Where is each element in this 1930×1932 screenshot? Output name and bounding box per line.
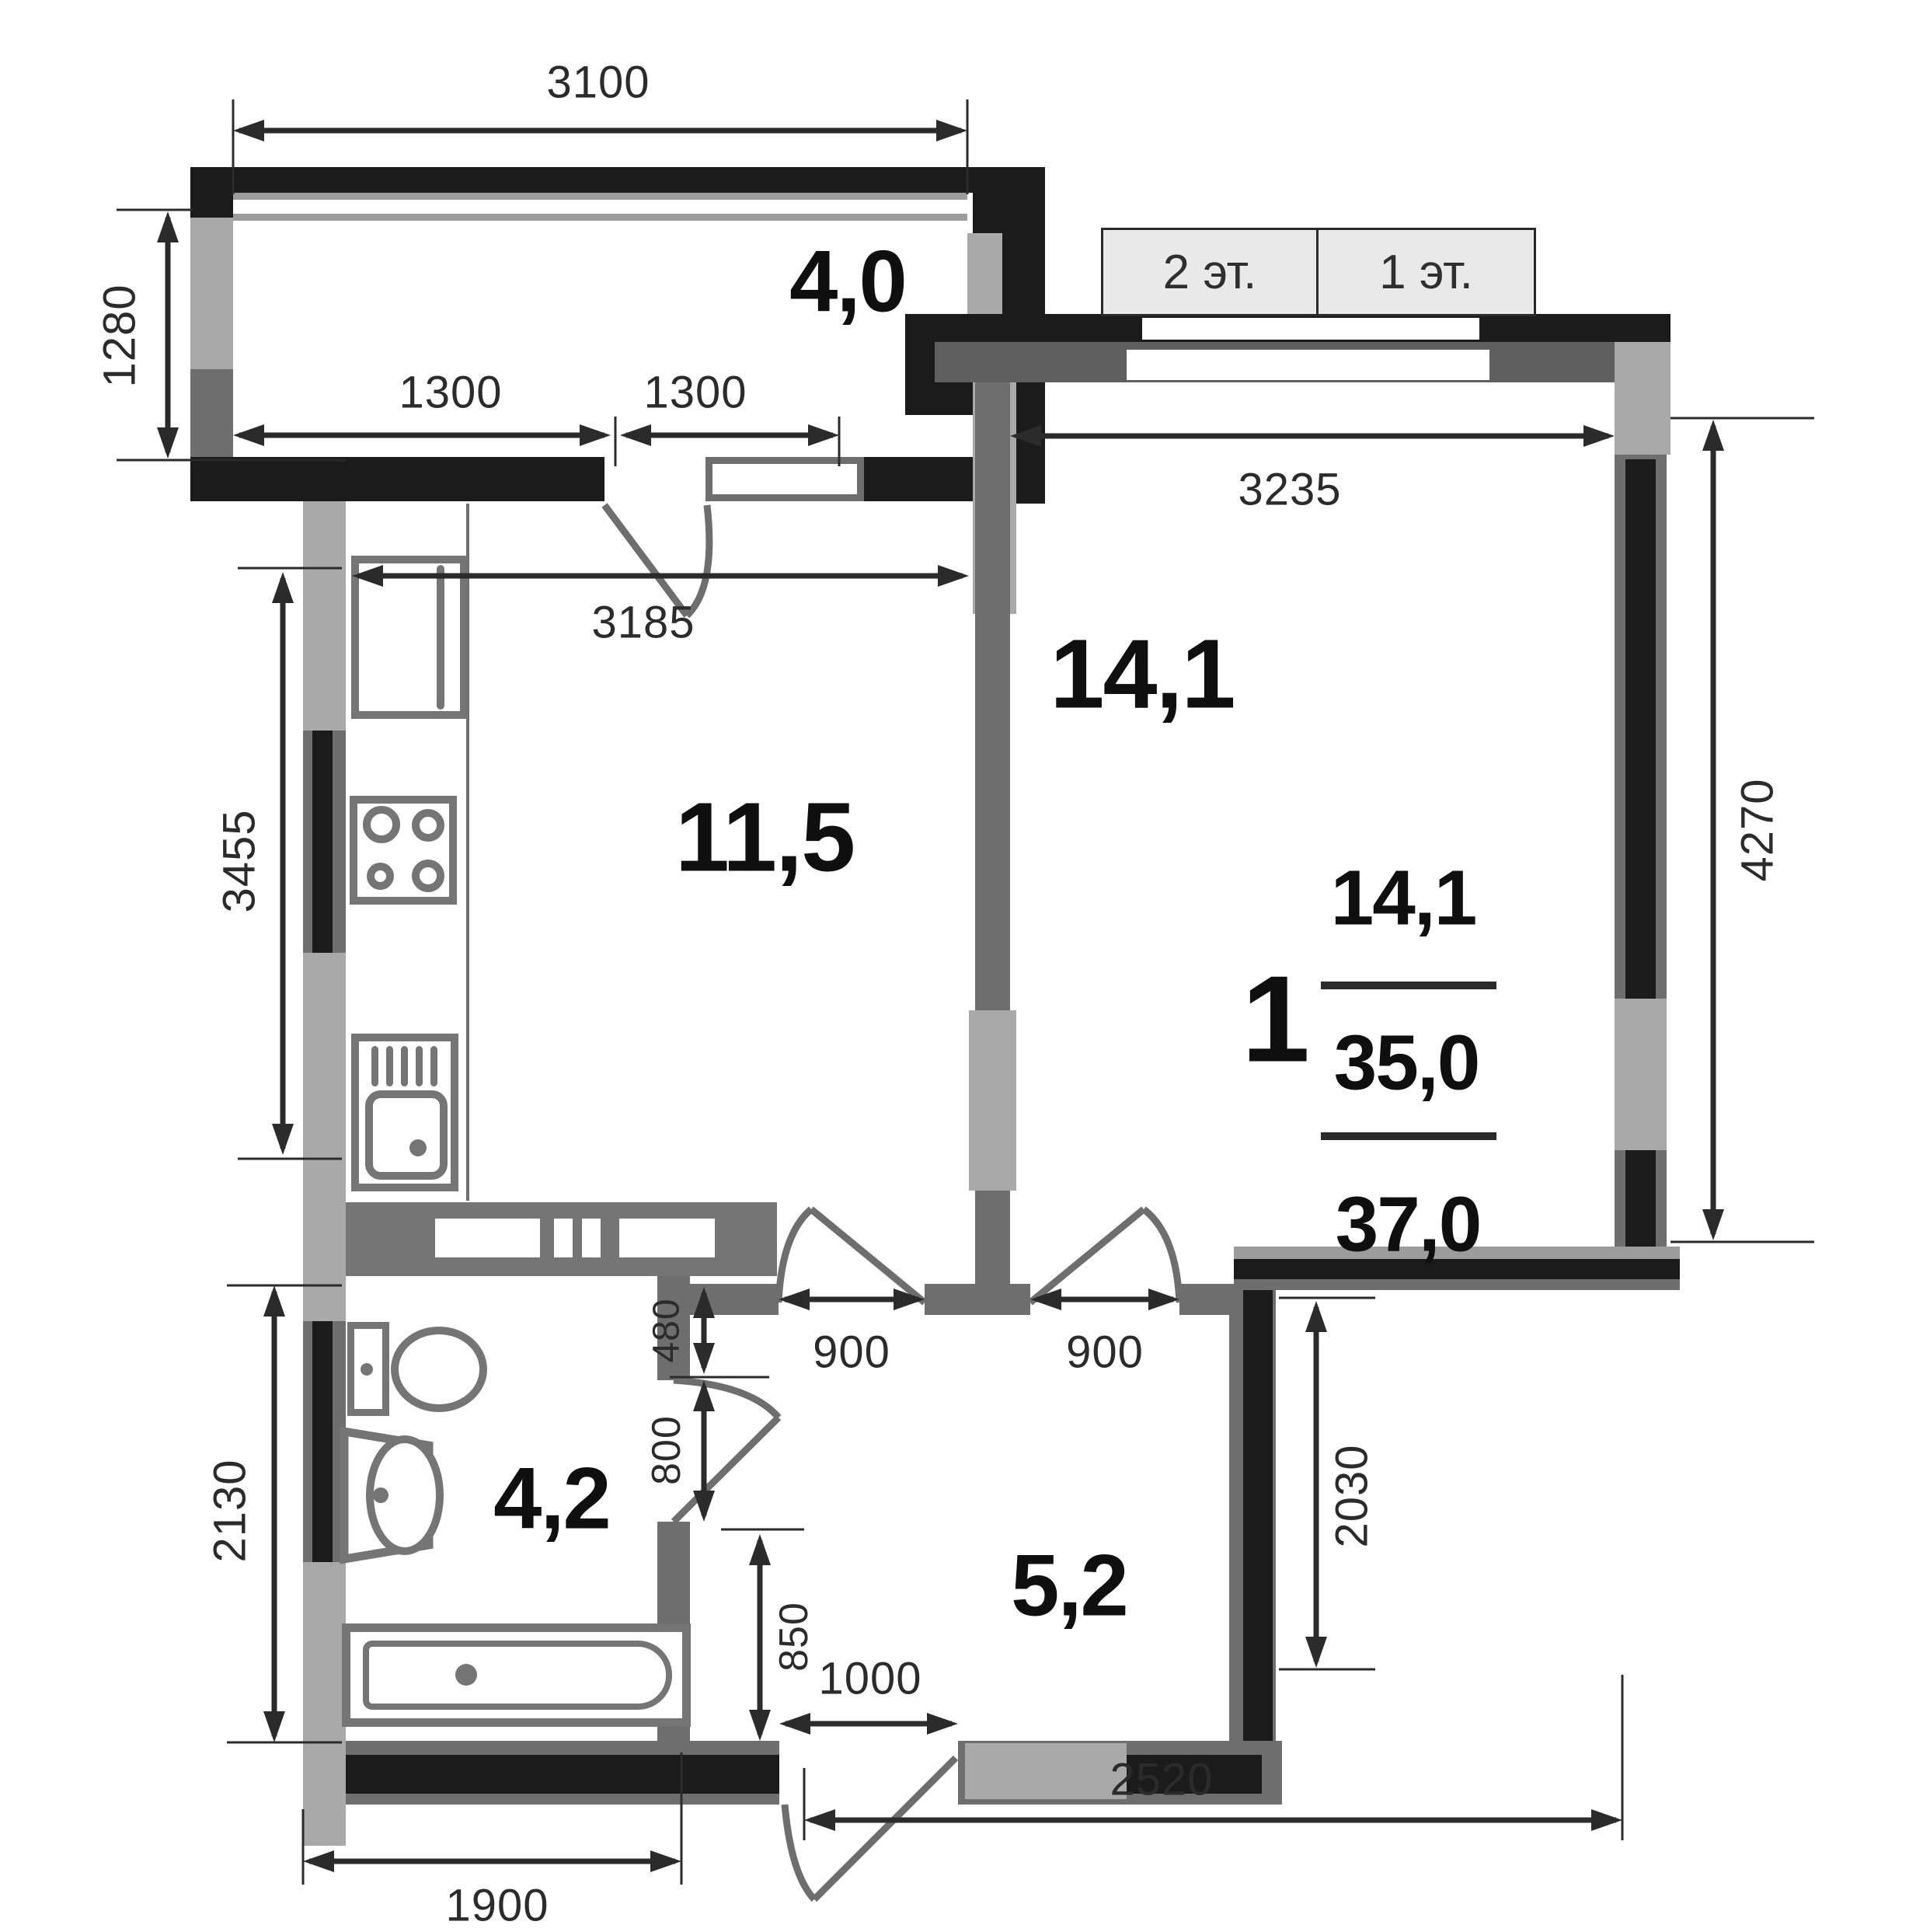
bathroom-area-label: 4,2 <box>493 1449 610 1549</box>
dim-balcony-width <box>233 99 967 194</box>
summary-living-area: 14,1 <box>1331 854 1476 943</box>
dim-balcony-depth <box>117 210 346 460</box>
floor-2-label: 2 эт. <box>1163 245 1257 300</box>
dim-label-1900: 1900 <box>445 1880 549 1932</box>
floor-2-button[interactable]: 2 эт. <box>1101 228 1319 316</box>
dim-label-1300a: 1300 <box>399 367 502 419</box>
kitchen-door-swing <box>779 1209 925 1303</box>
dim-label-1000: 1000 <box>818 1653 921 1705</box>
dim-bathroom-width <box>303 1752 681 1885</box>
dim-balcony-glass-right <box>615 417 839 466</box>
dim-label-1280: 1280 <box>94 284 146 387</box>
summary-area-no-balcony: 35,0 <box>1334 1019 1479 1108</box>
dim-balcony-glass-left <box>233 424 611 446</box>
living-area-label: 14,1 <box>1050 618 1234 731</box>
floor-1-button[interactable]: 1 эт. <box>1319 228 1536 316</box>
dim-living-door <box>1030 1289 1179 1310</box>
dim-label-3100: 3100 <box>546 57 650 109</box>
dim-label-850: 850 <box>771 1602 817 1672</box>
dim-label-3185: 3185 <box>591 597 695 649</box>
dim-label-2520: 2520 <box>1110 1754 1213 1806</box>
summary-divider-2 <box>1321 1132 1496 1140</box>
dim-label-480: 480 <box>646 1298 688 1362</box>
summary-total-area: 37,0 <box>1336 1180 1481 1270</box>
dim-label-900b: 900 <box>1066 1327 1144 1379</box>
dim-kitchen-door <box>779 1289 925 1310</box>
kitchen-area-label: 11,5 <box>675 781 854 894</box>
dim-label-900a: 900 <box>813 1327 890 1379</box>
dim-label-3235: 3235 <box>1238 464 1341 516</box>
dim-label-1300b: 1300 <box>643 367 747 419</box>
dim-label-800: 800 <box>643 1415 690 1485</box>
summary-rooms-count: 1 <box>1242 950 1308 1090</box>
hallway-area-label: 5,2 <box>1011 1536 1127 1636</box>
dim-living-width <box>1010 425 1615 447</box>
bathroom-sink-icon <box>344 1432 440 1559</box>
dim-label-2130: 2130 <box>204 1459 256 1562</box>
summary-divider-1 <box>1321 982 1496 989</box>
floor-1-label: 1 эт. <box>1379 245 1473 300</box>
entrance-door-swing <box>785 1758 956 1899</box>
dim-label-2030: 2030 <box>1326 1444 1378 1547</box>
balcony-area-label: 4,0 <box>789 232 906 332</box>
living-door-swing <box>1030 1209 1179 1303</box>
dim-label-3455: 3455 <box>214 809 266 912</box>
dim-entrance-door <box>779 1713 958 1735</box>
floor-plan: 2 эт. 1 эт. 4,0 11,5 14,1 4,2 5,2 1 14,1… <box>0 0 1930 1930</box>
dim-label-4270: 4270 <box>1732 778 1784 881</box>
